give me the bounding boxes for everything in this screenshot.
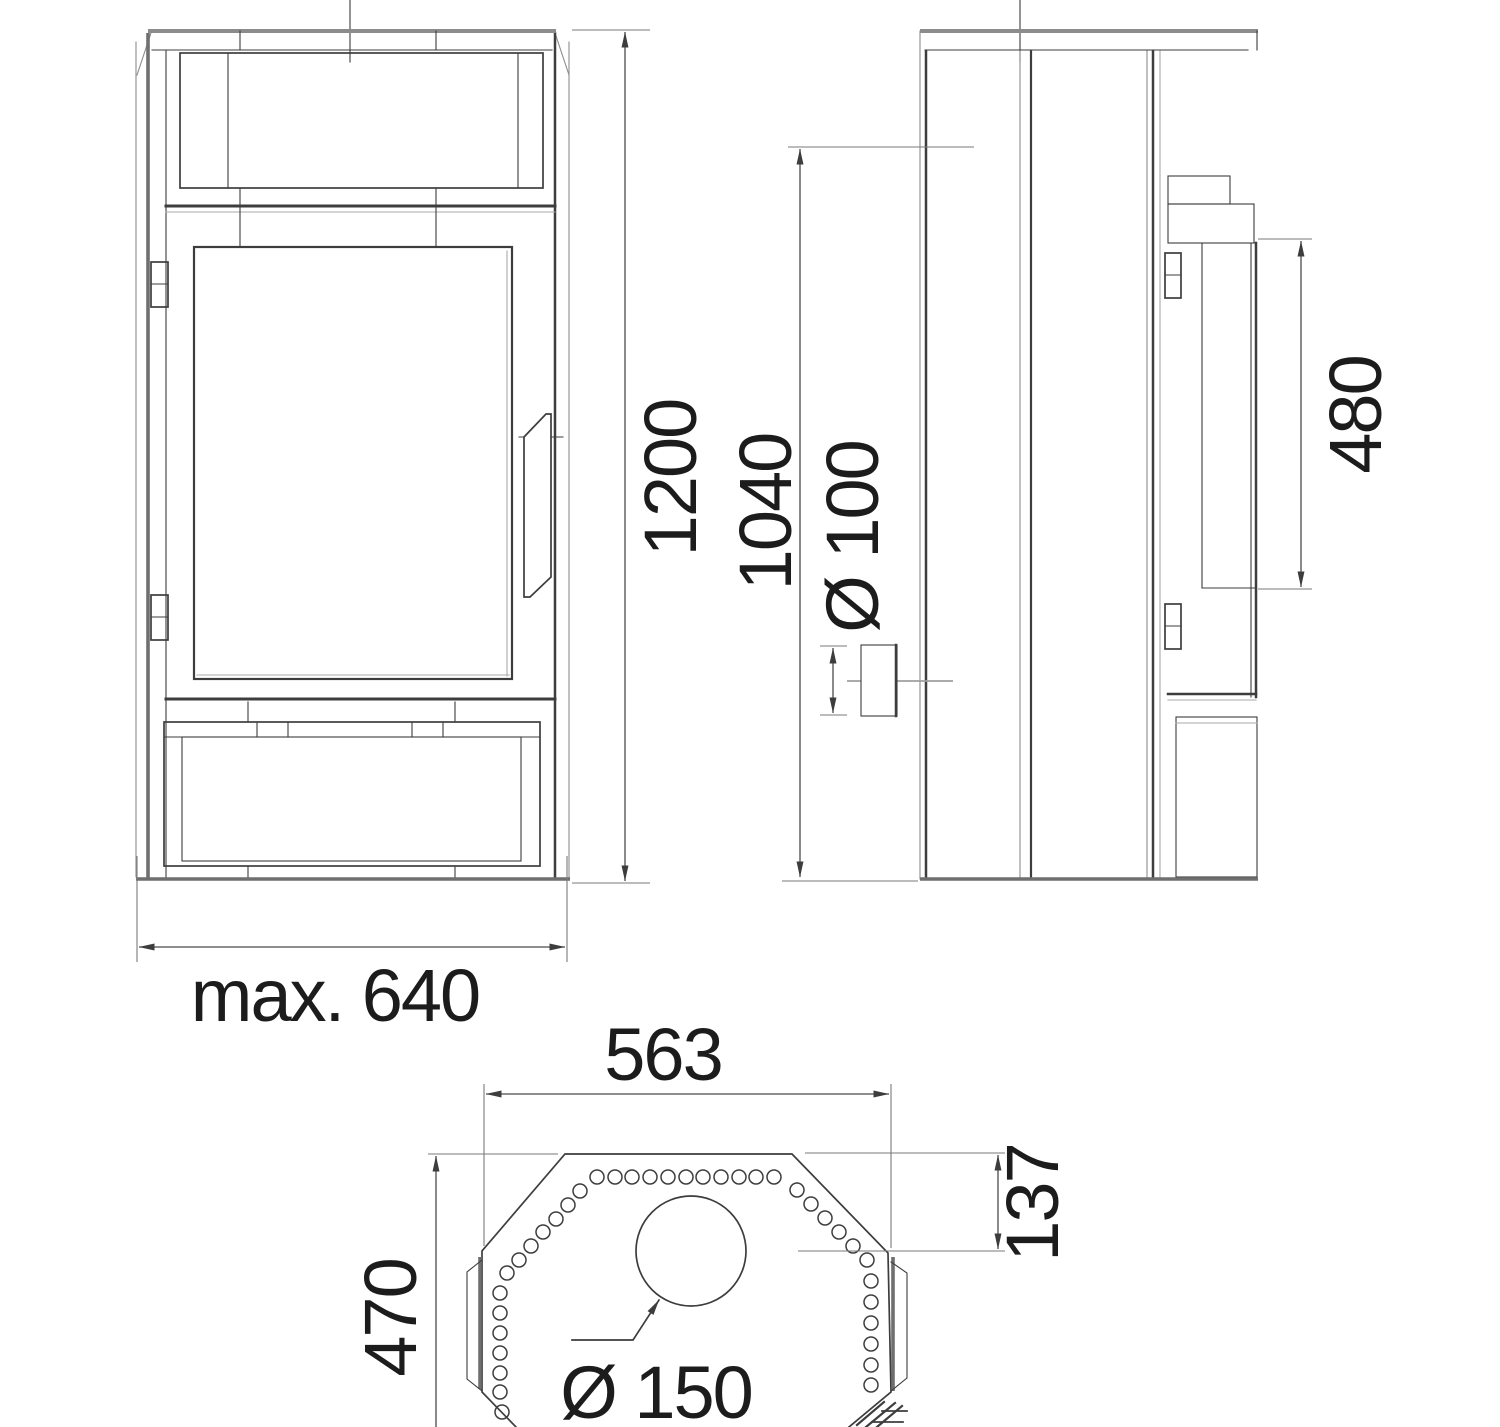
dim-depth: 470 — [349, 1154, 558, 1427]
dim-label-depth: 470 — [349, 1259, 432, 1376]
lower-box — [164, 722, 540, 866]
side-view — [847, 0, 1258, 879]
vent-holes-top-row — [590, 1170, 781, 1184]
vent-holes-right — [790, 1183, 878, 1392]
dim-top-flue-diameter: Ø 150 — [560, 1300, 752, 1427]
dim-label-rear-flue-height: 1040 — [724, 434, 807, 591]
dim-label-overall-height: 1200 — [629, 400, 712, 557]
dim-label-top-flue-diameter: Ø 150 — [560, 1351, 752, 1427]
dim-label-top-edge-inset: 137 — [991, 1144, 1074, 1261]
dim-overall-height: 1200 — [572, 30, 712, 883]
door-handle — [519, 414, 563, 597]
dim-max-width: max. 640 — [137, 856, 567, 1037]
side-hinge-top — [1165, 253, 1181, 298]
lower-front-panel — [1176, 717, 1257, 877]
side-hinge-bottom — [1165, 604, 1181, 649]
stove-technical-drawing: max. 640 1200 1040 Ø 100 480 563 137 — [0, 0, 1500, 1427]
upper-box — [180, 53, 543, 188]
dim-label-glass-height: 480 — [1314, 356, 1397, 473]
front-view — [136, 0, 570, 879]
dim-label-top-plate-width: 563 — [604, 1013, 721, 1096]
dim-glass-height: 480 — [1258, 239, 1397, 589]
door-glass — [194, 247, 512, 679]
rear-flue-stub — [847, 645, 953, 716]
dim-label-rear-flue-diameter: Ø 100 — [811, 441, 894, 633]
dim-label-max-width: max. 640 — [191, 954, 479, 1037]
flue-opening — [636, 1196, 746, 1306]
drawing-canvas: max. 640 1200 1040 Ø 100 480 563 137 — [0, 0, 1500, 1427]
